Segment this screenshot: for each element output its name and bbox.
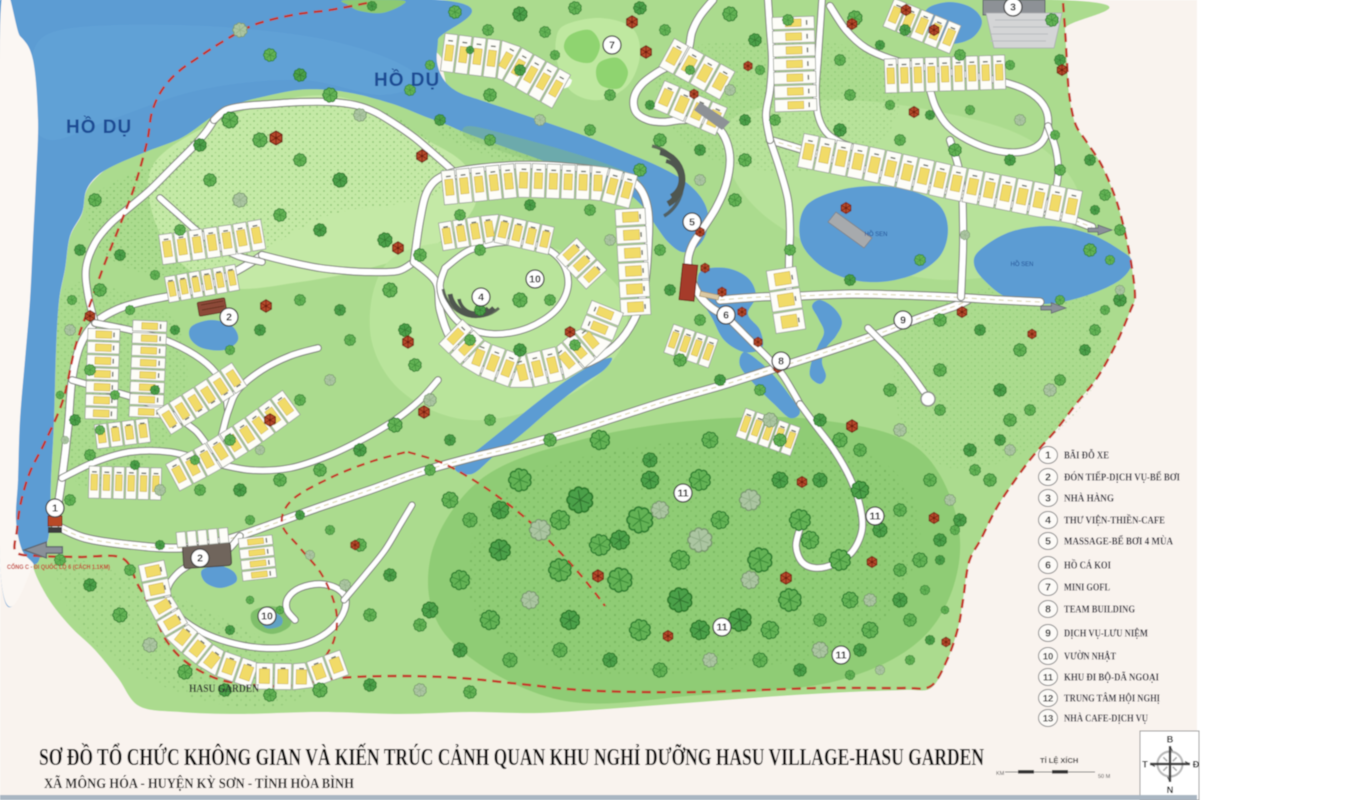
svg-text:6: 6 bbox=[1045, 560, 1051, 572]
svg-text:SƠ ĐỒ TỔ CHỨC KHÔNG GIAN VÀ KI: SƠ ĐỒ TỔ CHỨC KHÔNG GIAN VÀ KIẾN TRÚC CẢ… bbox=[39, 744, 984, 771]
svg-text:4: 4 bbox=[478, 292, 484, 304]
svg-text:2: 2 bbox=[226, 312, 232, 324]
svg-text:HỒ DỤ: HỒ DỤ bbox=[374, 69, 440, 91]
svg-text:10: 10 bbox=[1043, 652, 1054, 663]
svg-text:1: 1 bbox=[52, 503, 58, 515]
svg-text:7: 7 bbox=[609, 40, 615, 52]
svg-text:4: 4 bbox=[1045, 515, 1051, 527]
svg-text:NHÀ HÀNG: NHÀ HÀNG bbox=[1064, 493, 1114, 505]
svg-text:2: 2 bbox=[197, 553, 203, 565]
svg-text:11: 11 bbox=[716, 622, 727, 634]
svg-text:2: 2 bbox=[1045, 472, 1051, 484]
svg-text:BÃI ĐỖ XE: BÃI ĐỖ XE bbox=[1064, 449, 1109, 462]
svg-text:THƯ VIỆN-THIỀN-CAFE: THƯ VIỆN-THIỀN-CAFE bbox=[1064, 514, 1165, 527]
svg-text:11: 11 bbox=[869, 511, 880, 523]
svg-text:Đ: Đ bbox=[1193, 760, 1200, 770]
svg-text:9: 9 bbox=[1045, 628, 1051, 640]
svg-text:CỔNG C - ĐI QUỐC LỘ 6 (CÁCH 1.: CỔNG C - ĐI QUỐC LỘ 6 (CÁCH 1.1KM) bbox=[7, 563, 110, 571]
svg-text:HỒ DỤ: HỒ DỤ bbox=[66, 116, 132, 138]
svg-text:5: 5 bbox=[689, 217, 695, 229]
svg-text:5: 5 bbox=[1045, 536, 1051, 548]
svg-text:HỒ SEN: HỒ SEN bbox=[1010, 261, 1033, 268]
svg-text:11: 11 bbox=[677, 488, 688, 500]
svg-text:9: 9 bbox=[900, 315, 906, 327]
svg-text:KM: KM bbox=[996, 771, 1005, 777]
svg-text:ĐÓN TIẾP-DỊCH VỤ-BỂ BƠI: ĐÓN TIẾP-DỊCH VỤ-BỂ BƠI bbox=[1064, 471, 1180, 484]
svg-text:12: 12 bbox=[1043, 694, 1054, 705]
svg-text:HỒ SEN: HỒ SEN bbox=[864, 231, 887, 238]
svg-text:3: 3 bbox=[1045, 493, 1051, 505]
svg-text:50 M: 50 M bbox=[1098, 774, 1111, 780]
svg-text:KHU ĐI BỘ-DÃ NGOẠI: KHU ĐI BỘ-DÃ NGOẠI bbox=[1064, 671, 1159, 684]
svg-text:13: 13 bbox=[1043, 714, 1054, 725]
svg-text:HASU GARDEN: HASU GARDEN bbox=[189, 683, 260, 695]
svg-text:8: 8 bbox=[1045, 604, 1051, 616]
svg-text:10: 10 bbox=[261, 611, 273, 623]
svg-text:DỊCH VỤ-LƯU NIỆM: DỊCH VỤ-LƯU NIỆM bbox=[1064, 627, 1148, 640]
svg-text:TỈ LỆ XÍCH: TỈ LỆ XÍCH bbox=[1040, 756, 1078, 765]
svg-text:10: 10 bbox=[529, 274, 541, 286]
svg-text:6: 6 bbox=[723, 310, 729, 322]
svg-text:N: N bbox=[1167, 785, 1174, 795]
svg-text:HỒ CÁ KOI: HỒ CÁ KOI bbox=[1064, 559, 1111, 572]
svg-text:TEAM BUILDING: TEAM BUILDING bbox=[1064, 604, 1135, 616]
svg-text:VƯỜN NHẬT: VƯỜN NHẬT bbox=[1064, 650, 1117, 663]
svg-text:B: B bbox=[1167, 735, 1174, 745]
svg-text:7: 7 bbox=[1045, 582, 1051, 594]
svg-text:MASSAGE-BỂ BƠI 4 MÙA: MASSAGE-BỂ BƠI 4 MÙA bbox=[1064, 535, 1173, 548]
svg-text:MINI GOFL: MINI GOFL bbox=[1064, 582, 1110, 594]
svg-text:TRUNG TÂM HỘI NGHỊ: TRUNG TÂM HỘI NGHỊ bbox=[1064, 692, 1160, 705]
svg-text:3: 3 bbox=[1010, 2, 1016, 14]
svg-text:NHÀ CAFE-DỊCH VỤ: NHÀ CAFE-DỊCH VỤ bbox=[1064, 713, 1148, 725]
svg-text:XÃ MÔNG HÓA - HUYỆN KỲ SƠN - T: XÃ MÔNG HÓA - HUYỆN KỲ SƠN - TỈNH HÒA BÌ… bbox=[44, 774, 355, 792]
svg-text:11: 11 bbox=[1043, 673, 1054, 684]
svg-text:11: 11 bbox=[835, 650, 846, 662]
svg-text:T: T bbox=[1142, 760, 1148, 770]
svg-text:8: 8 bbox=[778, 356, 784, 368]
svg-text:1: 1 bbox=[1045, 450, 1051, 462]
